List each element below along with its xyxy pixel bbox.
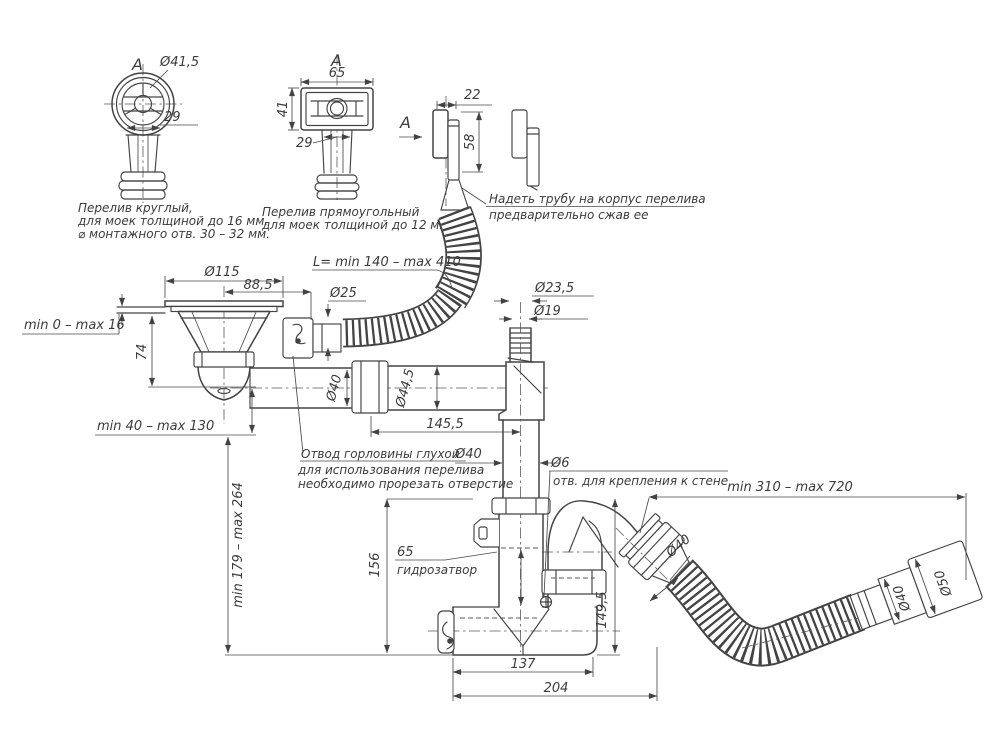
round-caption-1: Перелив круглый, [78,201,193,215]
outlet-hose [679,573,858,647]
svg-text:204: 204 [544,681,569,696]
svg-text:Ø115: Ø115 [203,265,239,280]
strainer [117,286,341,424]
svg-text:min 0 – max 16: min 0 – max 16 [24,318,125,333]
svg-text:min 179 – max 264: min 179 – max 264 [231,482,246,608]
end-fitting: Ø40 Ø50 [845,540,983,641]
svg-text:88,5: 88,5 [244,278,273,293]
svg-text:74: 74 [135,344,150,361]
svg-text:гидрозатвор: гидрозатвор [397,563,477,577]
wall-screw [541,597,552,608]
svg-text:Ø19: Ø19 [533,304,561,319]
round-caption-3: ⌀ монтажного отв. 30 – 32 мм. [78,227,270,241]
svg-text:Ø44,5: Ø44,5 [393,367,418,410]
rect-overflow-detail: А 65 41 29 Перелив прямоугольный для мое… [261,51,456,232]
svg-text:145,5: 145,5 [426,417,463,432]
label-head-height: 58 [463,134,478,151]
svg-text:необходимо прорезать отверстие: необходимо прорезать отверстие [298,477,513,491]
trap [428,607,620,655]
drop-union-nut [492,498,550,514]
dim-height-adjust: min 40 – max 130 [95,389,256,435]
dim-port-dia-outer: Ø23,5 [494,281,594,301]
svg-text:Отвод горловины глухой: Отвод горловины глухой [301,447,460,461]
view-label-a-round: А [131,55,143,74]
label-rect-neck: 29 [296,136,313,151]
note-water-seal: 65 гидрозатвор [395,545,541,605]
rect-caption-2: для моек толщиной до 12 мм . [261,218,456,232]
svg-text:для использования перелива: для использования перелива [297,463,484,477]
dim-tube-length: 145,5 [371,416,520,437]
drawing-canvas: А Ø41,5 29 Перелив круглый, для моек тол… [0,0,1000,750]
overflow-spout [283,318,341,358]
label-head-width: 22 [464,88,481,103]
riser-nut [542,570,606,594]
tee-body [499,328,544,420]
svg-text:65: 65 [397,545,414,560]
svg-text:Ø6: Ø6 [550,456,570,471]
svg-text:min 310 – max 720: min 310 – max 720 [727,480,853,495]
label-round-dia: Ø41,5 [159,55,199,70]
svg-text:149,5: 149,5 [595,591,610,628]
svg-text:137: 137 [511,657,537,672]
svg-text:Ø40: Ø40 [324,373,346,404]
label-rect-width: 65 [329,66,346,81]
dim-sink-thickness: min 0 – max 16 [22,294,125,334]
cleanout-cap [438,611,454,653]
svg-text:отв. для крепления к стене: отв. для крепления к стене [553,474,728,488]
head-note-1: Надеть трубу на корпус перелива [489,192,706,206]
tube-union-nut [352,361,388,413]
overflow-head-side-silhouette [512,110,539,190]
round-overflow-detail: А Ø41,5 29 Перелив круглый, для моек тол… [77,55,270,241]
dim-drop-pipe-dia: Ø40 [454,447,560,463]
round-caption-2: для моек толщиной до 16 мм. [77,214,268,228]
svg-text:L= min 140 – max 410: L= min 140 – max 410 [313,255,461,270]
dim-port-dia-inner: Ø19 [499,304,588,319]
siphon-assembly-drawing: А Ø41,5 29 Перелив круглый, для моек тол… [0,0,1000,750]
head-note-2: предварительно сжав ее [489,208,649,222]
svg-text:156: 156 [368,553,383,578]
rect-caption-1: Перелив прямоугольный [262,205,420,219]
overflow-head: А 22 58 Надеть трубу на корпус перелива … [399,88,706,222]
dim-trap-width: 137 [453,657,593,701]
svg-text:Ø25: Ø25 [329,286,357,301]
view-label-a-main: А [399,113,411,132]
svg-text:min 40 – max 130: min 40 – max 130 [97,419,214,434]
label-rect-height: 41 [276,101,291,118]
label-round-neck: 29 [164,110,181,125]
svg-text:Ø23,5: Ø23,5 [534,281,574,296]
dim-tube-dia-outer: Ø44,5 [393,367,437,410]
